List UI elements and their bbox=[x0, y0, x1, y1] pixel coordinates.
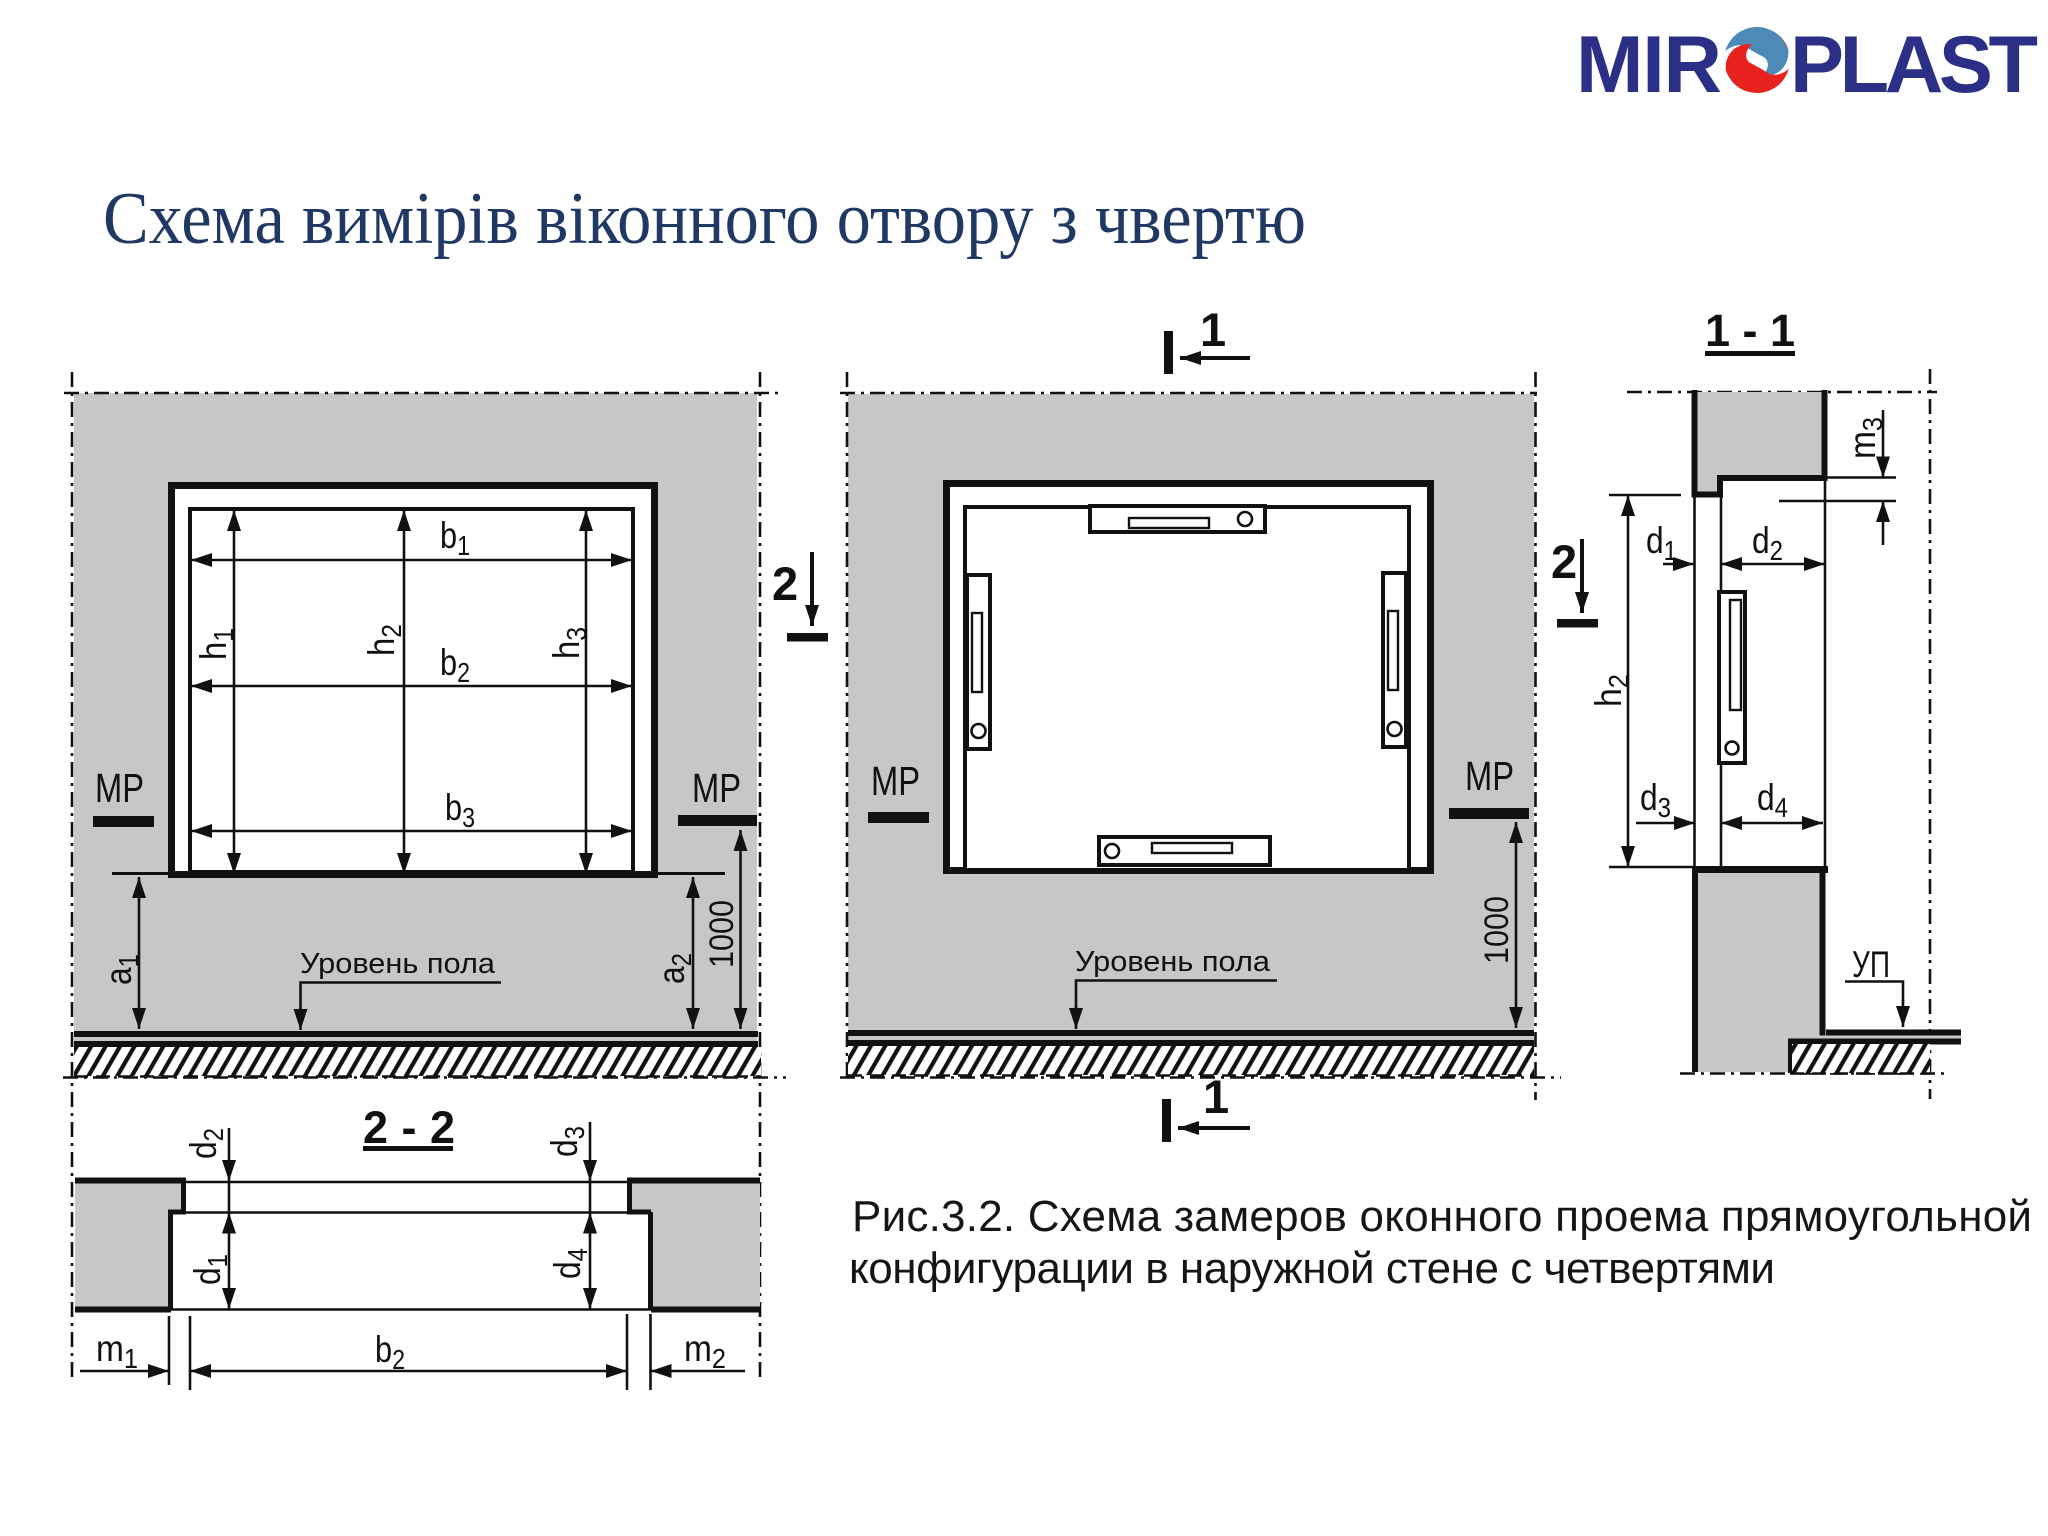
svg-text:МР: МР bbox=[871, 758, 920, 804]
svg-text:MIR: MIR bbox=[1576, 20, 1723, 110]
svg-text:2: 2 bbox=[772, 557, 798, 610]
svg-text:МР: МР bbox=[692, 765, 741, 811]
svg-text:PLAST: PLAST bbox=[1790, 20, 2039, 110]
svg-text:d2: d2 bbox=[183, 1128, 229, 1159]
svg-text:Уровень пола: Уровень пола bbox=[1075, 946, 1271, 978]
svg-text:d1: d1 bbox=[1646, 520, 1677, 566]
svg-text:h2: h2 bbox=[1588, 674, 1634, 707]
svg-text:Рис.3.2. Схема замеров оконног: Рис.3.2. Схема замеров оконного проема п… bbox=[852, 1192, 2032, 1241]
svg-text:1 - 1: 1 - 1 bbox=[1705, 305, 1795, 356]
svg-text:m1: m1 bbox=[96, 1328, 138, 1374]
svg-text:МР: МР bbox=[95, 765, 144, 811]
svg-text:d3: d3 bbox=[544, 1126, 590, 1157]
svg-text:2: 2 bbox=[1551, 535, 1577, 588]
svg-text:m2: m2 bbox=[684, 1328, 726, 1374]
svg-text:d2: d2 bbox=[1752, 520, 1783, 566]
svg-text:d1: d1 bbox=[187, 1254, 233, 1285]
svg-text:УП: УП bbox=[1852, 944, 1890, 985]
svg-text:d4: d4 bbox=[547, 1248, 593, 1279]
svg-text:b2: b2 bbox=[375, 1329, 405, 1375]
svg-text:1000: 1000 bbox=[703, 900, 741, 968]
svg-text:Схема вимірів віконного отвору: Схема вимірів віконного отвору з чвертю bbox=[103, 178, 1306, 260]
svg-text:m3: m3 bbox=[1842, 417, 1888, 459]
svg-text:МР: МР bbox=[1465, 753, 1514, 799]
svg-text:1000: 1000 bbox=[1478, 896, 1516, 964]
svg-text:конфигурации в наружной стене: конфигурации в наружной стене с четвертя… bbox=[849, 1244, 1775, 1293]
svg-text:Уровень пола: Уровень пола bbox=[300, 948, 496, 980]
svg-text:1: 1 bbox=[1200, 303, 1226, 356]
svg-text:1: 1 bbox=[1203, 1070, 1229, 1123]
svg-text:d4: d4 bbox=[1757, 777, 1788, 823]
svg-text:d3: d3 bbox=[1640, 777, 1671, 823]
svg-text:2 - 2: 2 - 2 bbox=[363, 1102, 455, 1153]
